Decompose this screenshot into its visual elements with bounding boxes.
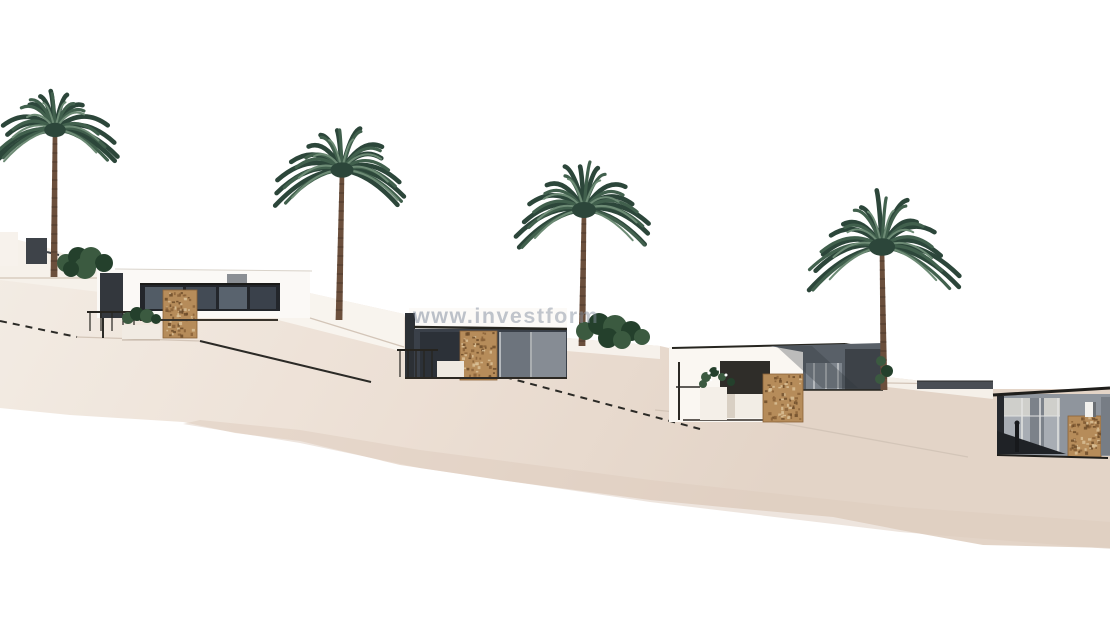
architectural-render-image: www.investform [0,0,1110,626]
scene: www.investform [0,0,1110,626]
watermark: www.investform [412,304,599,328]
